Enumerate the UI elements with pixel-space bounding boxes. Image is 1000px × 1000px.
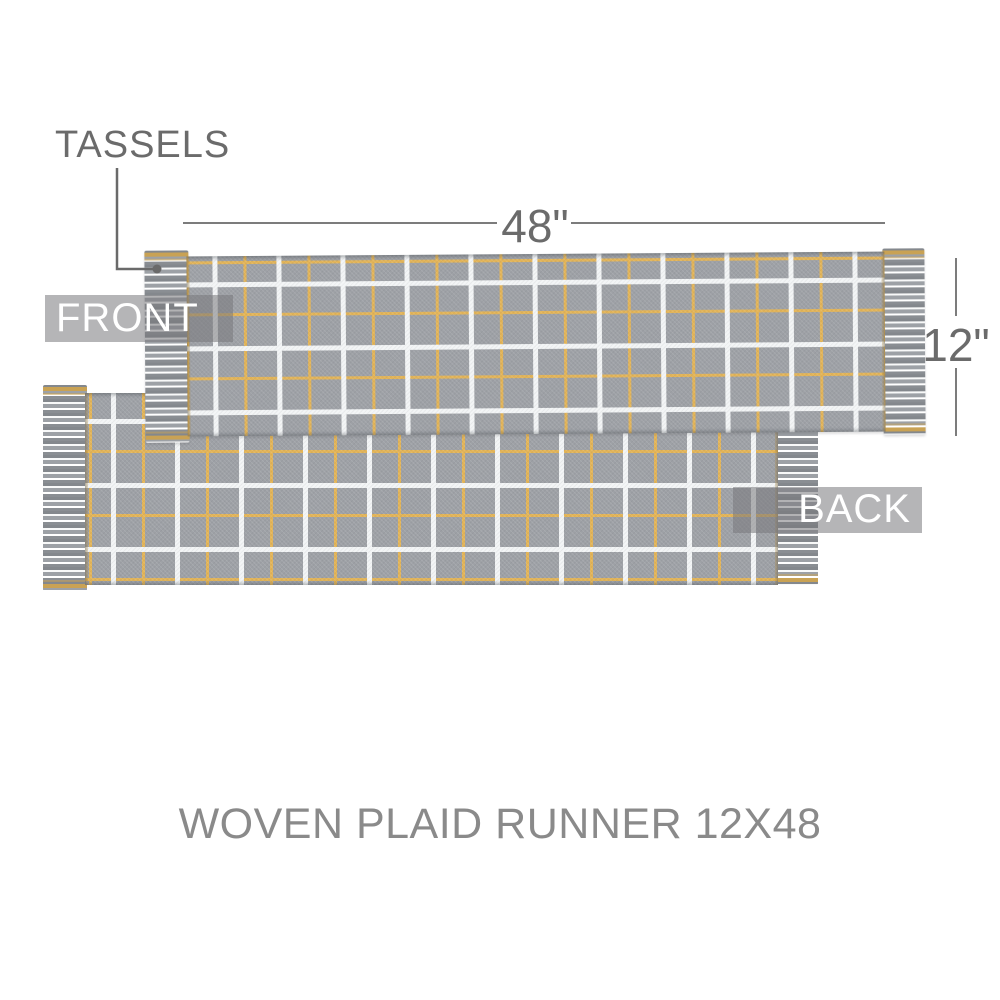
front-runner (144, 244, 925, 442)
tassels-pointer-line (110, 161, 170, 279)
height-dimension-line-top (955, 258, 957, 316)
front-left-tassels-fringe (144, 250, 189, 442)
height-dimension-label: 12" (913, 322, 999, 368)
tassels-pointer-dot (153, 265, 162, 274)
height-dimension-line-bottom (955, 368, 957, 436)
back-left-tassels-fringe (43, 385, 87, 591)
product-dimension-diagram: FRONT BACK TASSELS 48" 12" WOVEN PLAID R… (0, 0, 1000, 1000)
front-badge: FRONT (45, 295, 233, 342)
tassels-callout-label: TASSELS (55, 126, 230, 164)
back-badge-label: BACK (798, 489, 911, 529)
width-dimension-line-right (571, 222, 885, 224)
width-dimension-label: 48" (490, 203, 580, 249)
width-dimension-line-left (183, 222, 497, 224)
front-runner-fabric (186, 252, 885, 437)
back-badge: BACK (733, 487, 922, 533)
product-title: WOVEN PLAID RUNNER 12X48 (0, 803, 1000, 846)
front-badge-label: FRONT (56, 298, 199, 338)
